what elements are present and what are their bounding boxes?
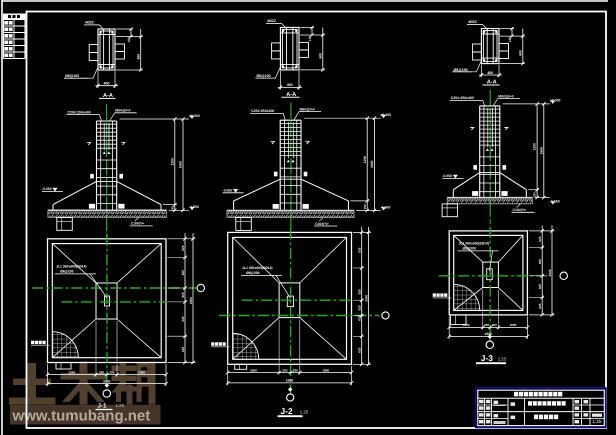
svg-text:C10#(*#•: C10#(*#• (131, 222, 145, 226)
svg-text:400: 400 (487, 71, 493, 75)
svg-text:1250: 1250 (170, 158, 174, 166)
svg-text:250: 250 (363, 204, 367, 209)
svg-text:100: 100 (127, 37, 131, 43)
svg-text:1500: 1500 (539, 147, 543, 155)
svg-text:-0.050: -0.050 (42, 187, 52, 191)
svg-text:M5#@#•#: M5#@#•# (115, 109, 130, 113)
svg-text:C10#(*#•: C10#(*#• (513, 208, 527, 212)
svg-text:Ø8@100: Ø8@100 (65, 74, 79, 78)
svg-text:1500: 1500 (179, 161, 183, 169)
svg-text:625: 625 (358, 305, 362, 310)
svg-text:1050: 1050 (138, 370, 145, 374)
svg-text:2500: 2500 (485, 332, 493, 336)
svg-text:625: 625 (538, 303, 542, 308)
svg-text:Ø8@100: Ø8@100 (453, 68, 467, 72)
svg-text:M5#@#•#: M5#@#•# (300, 107, 315, 111)
svg-text:J-2: J-2 (281, 406, 293, 416)
svg-text:250: 250 (99, 370, 104, 374)
svg-text:250: 250 (533, 192, 537, 197)
svg-text:C10#(*#•: C10#(*#• (315, 222, 329, 226)
svg-text:250: 250 (492, 323, 497, 327)
svg-text:625: 625 (181, 292, 185, 297)
svg-text:1500: 1500 (370, 161, 374, 169)
svg-text:250: 250 (293, 368, 298, 372)
svg-text:1050: 1050 (463, 323, 470, 327)
svg-text:625: 625 (181, 346, 185, 351)
svg-text:Ø8@100: Ø8@100 (256, 74, 270, 78)
svg-text:250: 250 (484, 323, 489, 327)
svg-text:100: 100 (508, 37, 512, 43)
svg-text:625: 625 (358, 247, 362, 252)
svg-text:100: 100 (308, 36, 312, 42)
svg-text:600: 600 (519, 50, 523, 56)
svg-text:J-1: J-1 (98, 402, 108, 409)
svg-text:M5#@#•#: M5#@#•# (498, 94, 513, 98)
svg-text:2500: 2500 (103, 379, 111, 383)
svg-text:-0.050: -0.050 (223, 188, 233, 192)
svg-text:600: 600 (319, 53, 323, 59)
svg-text:600: 600 (137, 54, 141, 60)
svg-text:C25#:250x400: C25#:250x400 (68, 110, 91, 114)
svg-text:1050: 1050 (322, 368, 329, 372)
svg-text:625: 625 (358, 347, 362, 352)
svg-text:-0.050: -0.050 (442, 174, 452, 178)
svg-text:www.tumubang.net: www.tumubang.net (12, 408, 151, 425)
svg-text:625: 625 (538, 259, 542, 264)
svg-text:1:25: 1:25 (116, 403, 125, 408)
svg-text:C25#:250x400: C25#:250x400 (451, 96, 474, 100)
svg-text:1:25: 1:25 (593, 419, 602, 424)
svg-text:1250: 1250 (363, 156, 367, 164)
svg-text:625: 625 (358, 289, 362, 294)
svg-text:625: 625 (181, 270, 185, 275)
svg-text:625: 625 (358, 315, 362, 320)
svg-text:4Ø22: 4Ø22 (468, 20, 477, 24)
svg-text:625: 625 (538, 236, 542, 241)
svg-text:250: 250 (109, 370, 114, 374)
svg-text:625: 625 (181, 316, 185, 321)
svg-text:400: 400 (287, 83, 293, 87)
svg-text:2500: 2500 (286, 379, 294, 383)
svg-text:625: 625 (538, 284, 542, 289)
svg-text:2500: 2500 (548, 269, 552, 276)
svg-text:C25#:250x400: C25#:250x400 (251, 109, 274, 113)
svg-text:1050: 1050 (250, 368, 257, 372)
svg-text:4Ø22: 4Ø22 (85, 21, 94, 25)
svg-text:400: 400 (104, 82, 110, 86)
svg-text:JL1 350x600(2Ø14): JL1 350x600(2Ø14) (242, 266, 273, 270)
svg-text:1:25: 1:25 (300, 410, 309, 415)
svg-text:2500: 2500 (364, 295, 368, 302)
svg-text:250: 250 (282, 368, 287, 372)
svg-text:250: 250 (170, 206, 174, 211)
svg-text:JL1 350x600(2Ø14): JL1 350x600(2Ø14) (459, 242, 490, 246)
svg-text:Ø8@200: Ø8@200 (463, 247, 477, 251)
svg-text:1050: 1050 (509, 323, 516, 327)
svg-text:JL1 350x600(2Ø14): JL1 350x600(2Ø14) (56, 265, 87, 269)
svg-text:Ø8@200: Ø8@200 (60, 270, 74, 274)
svg-text:Ø8@200: Ø8@200 (246, 271, 260, 275)
svg-text:J-3: J-3 (481, 353, 493, 363)
svg-text:4Ø22: 4Ø22 (267, 19, 276, 23)
svg-text:625: 625 (181, 245, 185, 250)
svg-text:1:25: 1:25 (498, 357, 507, 362)
svg-text:2500: 2500 (189, 297, 193, 304)
svg-text:1050: 1050 (68, 370, 75, 374)
svg-text:1250: 1250 (533, 143, 537, 151)
